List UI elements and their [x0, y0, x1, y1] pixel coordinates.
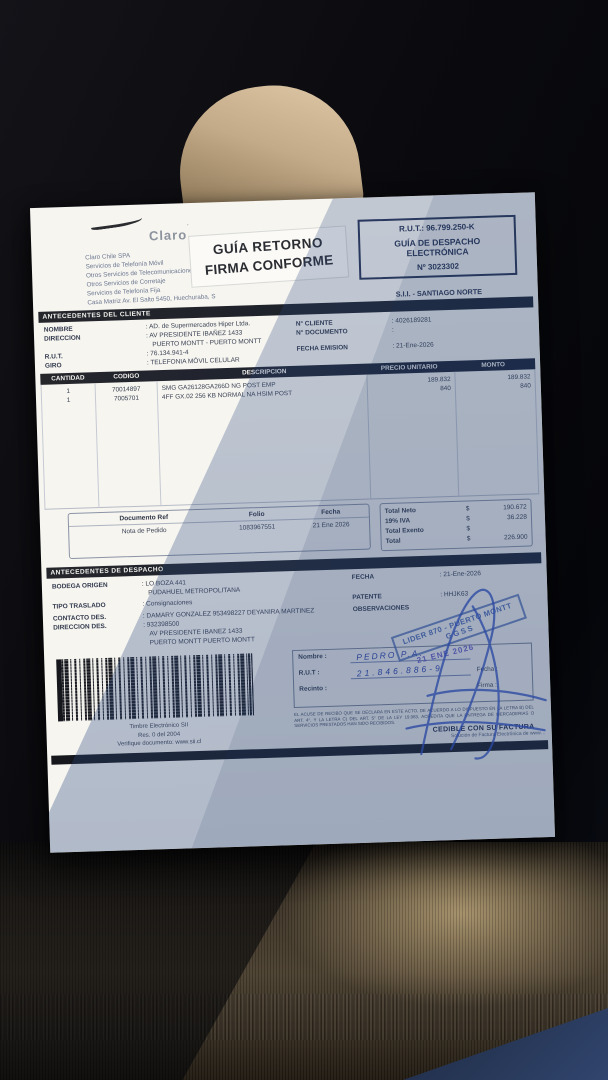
field-label: R.U.T.: [45, 353, 63, 361]
reference-box: Documento Ref Folio Fecha Nota de Pedido…: [68, 504, 371, 559]
codigo-column: 70014897 7005701: [96, 381, 162, 508]
field-value: : 4026189281: [392, 317, 432, 325]
guia-despacho-document: Claro ´ Claro Chile SPA Servicios de Tel…: [30, 192, 555, 853]
field-label: GIRO: [45, 362, 62, 370]
item-precio: 840: [368, 384, 451, 396]
field-value: PUERTO MONTT PUERTO MONTT: [150, 636, 255, 646]
monto-column: 189.832 840: [455, 369, 539, 496]
photo-scene: Claro ´ Claro Chile SPA Servicios de Tel…: [0, 0, 608, 1080]
field-value: : 932398500: [143, 621, 179, 629]
receipt-label: Recinto :: [299, 685, 327, 693]
total-label: Total: [386, 535, 458, 547]
field-value: : LO BOZA 441: [142, 579, 186, 587]
total-value: 226.900: [479, 533, 527, 545]
item-codigo: 7005701: [96, 393, 157, 404]
pdf417-barcode: [56, 653, 254, 721]
field-label: PATENTE: [352, 593, 382, 601]
field-label: N° DOCUMENTO: [296, 328, 348, 337]
descripcion-column: SMG GA26128GA266D NG POST EMP 4FF GX.02 …: [157, 375, 371, 507]
reference-column: Folio: [219, 507, 295, 521]
field-label: CONTACTO DES.: [53, 614, 106, 623]
document-number: Nº 3023302: [363, 260, 513, 274]
field-value: PUDAHUEL METROPOLITANA: [148, 587, 240, 597]
field-label: TIPO TRASLADO: [52, 602, 105, 611]
field-label: N° CLIENTE: [296, 320, 333, 328]
field-label: NOMBRE: [44, 326, 73, 334]
field-value: PUERTO MONTT - PUERTO MONTT: [152, 338, 261, 348]
rut-folio-box: R.U.T.: 96.799.250-K GUÍA DE DESPACHO EL…: [358, 215, 518, 280]
field-value: : 21-Ene-2026: [392, 341, 433, 349]
timbre-caption: Timbre Electrónico SII Res. 0 del 2004 V…: [58, 719, 260, 751]
emitter-rut: R.U.T.: 96.799.250-K: [362, 221, 512, 235]
item-cantidad: 1: [42, 395, 95, 406]
currency: $: [457, 534, 479, 545]
item-monto: 840: [456, 381, 531, 392]
field-label: FECHA: [352, 573, 375, 581]
field-label: FECHA EMISION: [296, 344, 348, 353]
receipt-label: Nombre :: [298, 653, 327, 661]
field-label: DIRECCION DES.: [53, 623, 107, 632]
items-table: CANTIDAD CODIGO DESCRIPCION PRECIO UNITA…: [40, 358, 539, 509]
field-value: : Consignaciones: [142, 599, 192, 608]
field-label: BODEGA ORIGEN: [52, 582, 108, 591]
reference-folio: 1083967551: [219, 520, 295, 536]
field-label: DIRECCION: [44, 335, 81, 343]
claro-logo: Claro: [149, 227, 188, 243]
signature-scribble: [394, 574, 550, 769]
cantidad-column: 1 1: [41, 383, 100, 510]
receipt-label: R.U.T :: [299, 669, 320, 677]
reference-column: Fecha: [295, 505, 367, 519]
field-value: : DAMARY GONZALEZ 953498227 DEYANIRA MAR…: [143, 607, 315, 619]
field-value: : TELEFONIA MÓVIL CELULAR: [147, 357, 240, 367]
field-value: :: [392, 327, 394, 334]
totals-box: Total Neto $ 190.672 19% IVA $ 36.228 To…: [379, 498, 532, 551]
claro-logo-tick: ´: [187, 223, 190, 232]
field-value: : 76.134.941-4: [147, 349, 189, 357]
precio-column: 189.832 840: [367, 372, 459, 500]
pen-swoosh-mark: [90, 214, 143, 231]
guia-retorno-stamp: GUÍA RETORNO FIRMA CONFORME: [188, 225, 349, 287]
reference-fecha: 21 Ene 2026: [295, 518, 367, 534]
items-table-body: 1 1 70014897 7005701 SMG GA26128GA266D N…: [41, 369, 540, 509]
